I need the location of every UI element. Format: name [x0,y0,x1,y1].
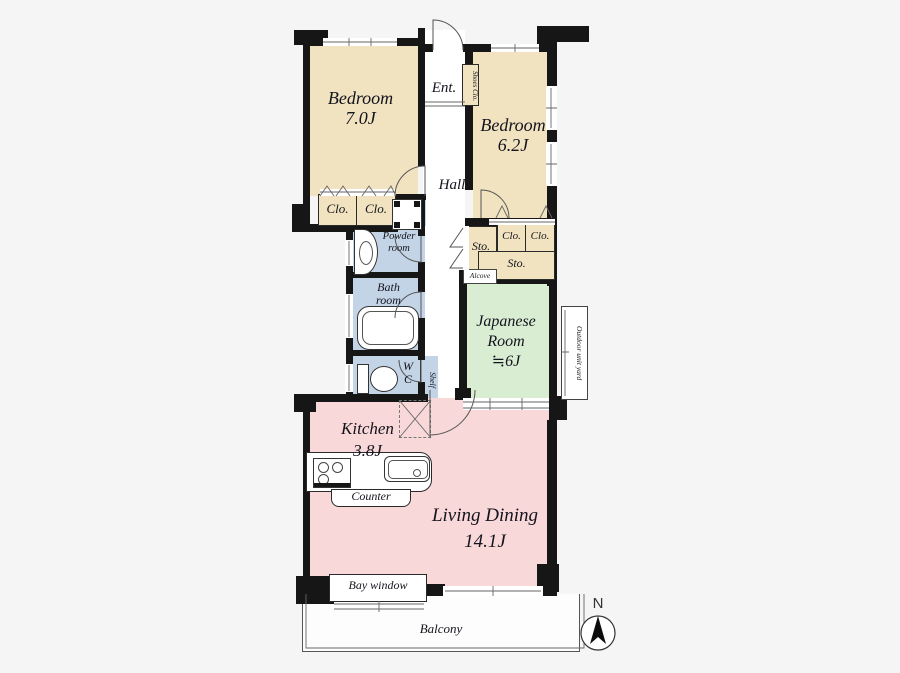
wc-label: W C [399,360,417,387]
powder-room-label: Powder room [374,231,424,255]
bay-window-label: Bay window [329,579,427,592]
wall-segment [537,26,589,42]
toilet-bowl-icon [370,366,398,392]
bedroom2-label: Bedroom 6.2J [473,115,553,155]
toilet-icon [357,364,369,394]
closet-label: Clo. [356,202,396,217]
window [323,38,397,46]
window [345,364,353,392]
storage1-label: Sto. [465,240,497,253]
room-name: Bedroom [473,115,553,135]
hall-label: Hall [423,177,481,194]
compass-needle [590,616,606,644]
shelf-label: Shelf [423,360,436,400]
wall-segment [465,44,473,66]
closet-door-track [320,189,396,196]
room-area: 14.1J [380,529,590,555]
wall-segment [418,108,425,166]
alcove-label: Alcove [463,272,497,280]
window [345,240,353,266]
balcony-label: Balcony [302,622,580,637]
compass [581,616,615,650]
closet-label: Clo. [318,202,357,217]
closet-label: Clo. [525,230,555,242]
room-name: Kitchen [305,418,430,440]
outdoor-unit-yard-label: Outdoor unit yard [566,310,583,396]
wall-segment [547,42,557,86]
kitchen-label: Kitchen 3.8J [305,418,430,462]
closet-door-track [489,219,555,225]
compass-circle [581,616,615,650]
storage2-label: Sto. [478,257,555,270]
floor-plan: Bedroom 7.0J Bedroom 6.2J Ent. Shoes Clo… [0,0,900,673]
japanese-room-label: Japanese Room ≒6J [463,312,549,372]
wall-segment [549,284,557,402]
sliding-door-track [463,398,549,410]
shoes-closet-label: Shoes Clo. [463,67,478,105]
bathtub-icon [357,306,419,350]
closet-label: Clo. [497,230,526,242]
window [443,586,543,596]
wall-segment [473,44,491,52]
living-dining-label: Living Dining 14.1J [380,503,590,554]
bedroom1-label: Bedroom 7.0J [303,88,418,128]
room-name: Bedroom [303,88,418,108]
wall-segment [418,44,433,52]
room-area: 3.8J [305,440,430,462]
wall-segment [352,350,425,356]
room-area: 6.2J [473,135,553,155]
counter-label: Counter [331,490,411,503]
room-area: 7.0J [303,108,418,128]
washing-machine-pan [392,199,422,230]
wall-segment [425,584,445,596]
room-name: Living Dining [380,503,590,529]
entrance-label: Ent. [423,80,465,97]
bath-room-label: Bath room [352,281,425,308]
compass-north-label: N [588,596,608,613]
gas-stove-icon [313,458,351,488]
wall-segment [418,318,425,360]
window [491,44,539,52]
